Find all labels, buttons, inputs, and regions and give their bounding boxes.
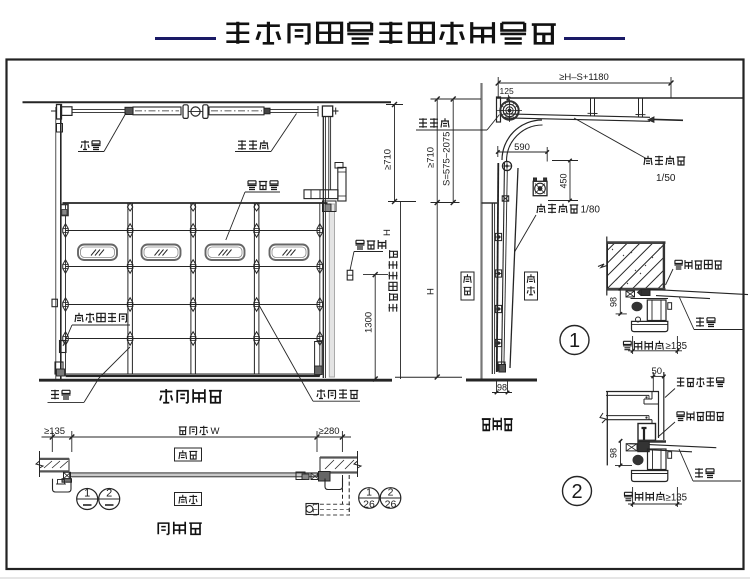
svg-text:1: 1 [366, 487, 372, 499]
svg-text:590: 590 [514, 142, 530, 153]
svg-text:1/80: 1/80 [581, 205, 601, 216]
svg-text:98: 98 [609, 297, 619, 307]
svg-text:≥135: ≥135 [666, 493, 687, 504]
svg-text:2: 2 [388, 487, 394, 499]
svg-text:26: 26 [363, 499, 375, 511]
svg-text:1: 1 [569, 330, 580, 352]
svg-text:≥280: ≥280 [319, 426, 340, 437]
svg-text:1300: 1300 [364, 312, 375, 333]
svg-text:1: 1 [84, 488, 90, 500]
svg-text:≥135: ≥135 [44, 426, 65, 437]
svg-text:1/50: 1/50 [656, 173, 676, 184]
svg-text:26: 26 [385, 499, 397, 511]
svg-text:W: W [211, 426, 220, 437]
svg-text:H: H [426, 288, 437, 295]
svg-text:H: H [382, 229, 393, 236]
svg-text:S=575~2075: S=575~2075 [442, 132, 453, 186]
svg-text:125: 125 [500, 86, 514, 96]
svg-text:≥710: ≥710 [383, 149, 394, 170]
svg-text:98: 98 [609, 448, 619, 458]
svg-text:450: 450 [559, 173, 569, 188]
svg-text:2: 2 [571, 481, 582, 503]
svg-text:2: 2 [106, 488, 112, 500]
svg-text:≥H–S+1180: ≥H–S+1180 [559, 72, 609, 83]
svg-text:≥710: ≥710 [426, 147, 437, 168]
